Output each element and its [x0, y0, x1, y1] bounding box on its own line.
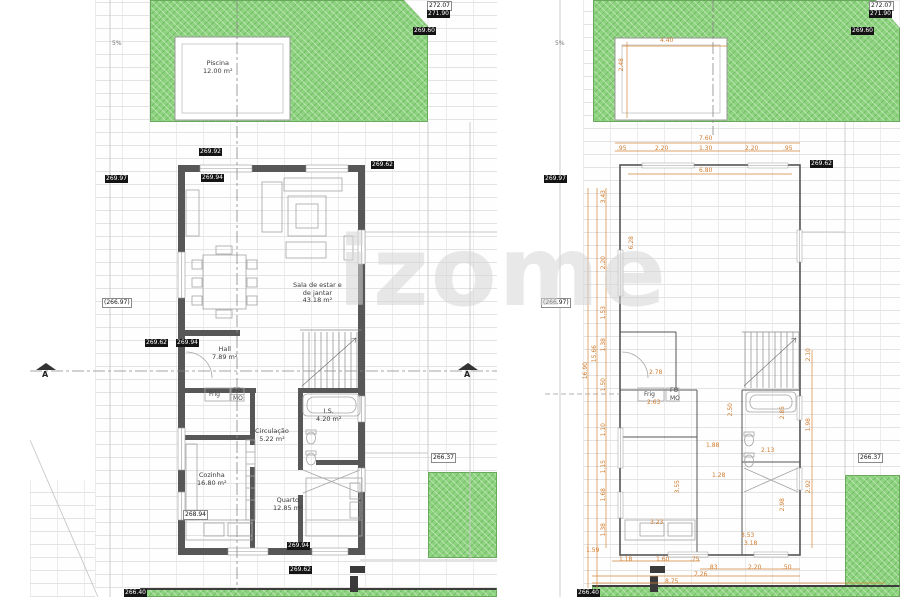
section-marker-a-right: A — [464, 370, 470, 379]
left-plan-walls — [178, 165, 365, 555]
right-plan-fixtures — [622, 352, 798, 540]
right-plan-stairs — [742, 332, 800, 388]
left-plan-furniture — [186, 178, 362, 540]
floor-plan-canvas: Piscina 12.00 m²Sala de estar e de janta… — [0, 0, 900, 597]
pool-left — [175, 37, 290, 120]
left-plan-stairs — [300, 330, 362, 388]
pool-right — [615, 38, 727, 120]
section-marker-a-left: A — [42, 370, 48, 379]
watermark: izome — [338, 224, 668, 320]
grass-corner-notches — [404, 0, 900, 28]
left-plan-windows — [178, 165, 365, 555]
section-marker-hats — [36, 363, 478, 370]
exterior-steps — [350, 566, 665, 592]
